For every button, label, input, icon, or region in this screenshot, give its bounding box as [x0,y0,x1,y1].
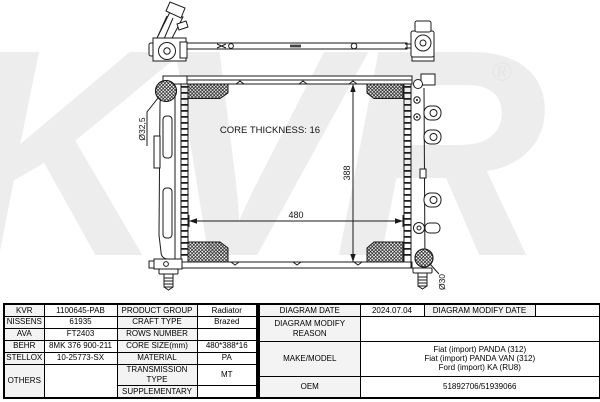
part-number-ava: FT2403 [44,328,117,340]
oem-value: 51892706/51939066 [360,376,600,398]
catalog-page: KVR ® [0,0,600,402]
property-core-size: CORE SIZE(mm) [117,340,197,352]
value-product-group: Radiator [197,304,257,316]
hatch-core-top-right [367,84,403,99]
value-material: PA [197,352,257,364]
hatch-core-bottom-right [367,242,403,262]
brand-cell-stellox: STELLOX [4,352,44,364]
part-number-nissens: 61935 [44,316,117,328]
make-model-value: Fiat (import) PANDA (312) Fiat (import) … [360,341,600,376]
diagram-info-table: DIAGRAM DATE 2024.07.04 DIAGRAM MODIFY D… [258,303,600,399]
top-view-drawing [149,2,434,61]
diagram-date-label: DIAGRAM DATE [259,304,360,316]
make-model-label: MAKE/MODEL [259,341,360,376]
cross-reference-table: KVR 1100645-PAB PRODUCT GROUP Radiator N… [3,303,258,399]
hose-fittings [424,106,441,207]
diagram-modify-date-label: DIAGRAM MODIFY DATE [424,304,535,316]
property-craft-type: CRAFT TYPE [117,316,197,328]
part-number-kvr: 1100645-PAB [44,304,117,316]
hatch-core-bottom-left [188,242,228,262]
diagram-modify-reason-value [360,316,600,341]
diagram-date-value: 2024.07.04 [360,304,424,316]
outlet-diameter-label: Ø30 [437,274,447,290]
value-core-size: 480*388*16 [197,340,257,352]
inlet-diameter-label: Ø32,5 [137,117,147,140]
bottom-band [180,262,412,268]
property-transmission-type: TRANSMISSION TYPE [117,364,197,385]
hatch-core-top-left [188,84,228,99]
brand-cell-others: OTHERS [4,364,44,398]
inlet-port [156,81,177,102]
part-number-behr: 8MK 376 900-211 [44,340,117,352]
width-dimension-label: 480 [288,210,303,220]
property-material: MATERIAL [117,352,197,364]
value-supplementary [197,385,257,398]
brand-cell-ava: AVA [4,328,44,340]
oem-label: OEM [259,376,360,398]
brand-cell-nissens: NISSENS [4,316,44,328]
diagram-modify-reason-label: DIAGRAM MODIFY REASON [259,316,360,341]
diagram-modify-date-value [535,304,600,316]
property-supplementary: SUPPLEMENTARY [117,385,197,398]
value-rows-number [197,328,257,340]
value-craft-type: Brazed [197,316,257,328]
brand-cell-kvr: KVR [4,304,44,316]
make-model-line: Fiat (import) PANDA VAN (312) [362,354,599,363]
height-dimension-label: 388 [342,165,352,180]
make-model-line: Fiat (import) PANDA (312) [362,345,599,354]
property-rows-number: ROWS NUMBER [117,328,197,340]
spec-table: KVR 1100645-PAB PRODUCT GROUP Radiator N… [3,303,600,399]
value-transmission-type: MT [197,364,257,385]
part-number-stellox: 10-25773-SX [44,352,117,364]
brand-cell-behr: BEHR [4,340,44,352]
property-product-group: PRODUCT GROUP [117,304,197,316]
make-model-line: Ford (import) KA (RU8) [362,363,599,372]
part-number-others [44,364,117,398]
front-view-drawing [147,74,441,290]
core-thickness-label: CORE THICKNESS: 16 [220,125,320,136]
radiator-technical-drawing: CORE THICKNESS: 16 480 388 Ø32,5 Ø30 [0,0,600,300]
